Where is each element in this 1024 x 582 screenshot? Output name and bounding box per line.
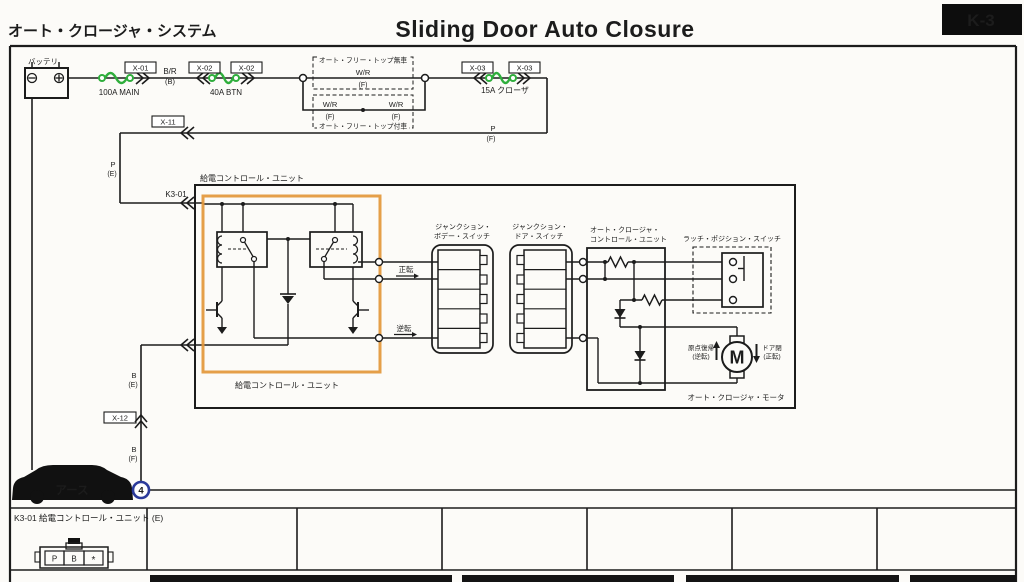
ground-point-number: 4 — [138, 486, 144, 497]
motor-unit-label: オート・クロージャ・モータ — [688, 393, 785, 402]
wire-color-p: P — [110, 160, 115, 169]
wire-loc-b: (B) — [165, 77, 176, 86]
contact-tabs — [517, 256, 524, 343]
footer-connector-cell: K3-01 給電コントロール・ユニット (E) P B * — [14, 513, 163, 568]
page-code-label: K-3 — [967, 11, 994, 30]
battery-plus-terminal-icon — [55, 74, 64, 83]
fuse-100a-main: 100A MAIN X-01 — [99, 62, 156, 97]
diode-icon — [635, 351, 646, 360]
motor-forward-label-1: ドア閉 — [762, 344, 782, 352]
motor-m-label: M — [730, 348, 745, 368]
switch-terminal — [730, 297, 737, 304]
unit-terminal — [376, 259, 383, 266]
resistor-icon — [608, 257, 628, 267]
transistor-2 — [353, 301, 369, 327]
wire-color-b: B — [131, 371, 136, 380]
signal-reverse: 逆転 — [394, 323, 417, 337]
acu-label-2: コントロール・ユニット — [590, 236, 667, 244]
ground-arrow-icon — [217, 327, 227, 334]
fuse-15a-closer: X-03 X-03 15A クローザ — [462, 62, 540, 95]
connector-x03-label: X-03 — [470, 64, 486, 73]
footer-row1-label: K3-01 給電コントロール・ユニット (E) — [14, 513, 163, 523]
wire-loc-e: (E) — [107, 171, 116, 178]
transistor-1 — [206, 301, 222, 327]
battery: バッテリ — [25, 57, 68, 98]
switch-terminal — [730, 259, 737, 266]
wire-color-p: P — [490, 124, 495, 133]
fuse-40a-btn: X-02 X-02 40A BTN — [189, 62, 262, 97]
wire-color-wr: W/R — [356, 68, 371, 77]
auto-closure-control-unit: オート・クロージャ・ コントロール・ユニット — [580, 226, 738, 390]
connector-x03-label: X-03 — [517, 64, 533, 73]
earth-label: アース — [55, 484, 88, 497]
wire-loc-f: (F) — [392, 114, 401, 121]
jb-door-label-2: ドア・スイッチ — [515, 233, 564, 241]
wire-color-wr: W/R — [389, 100, 404, 109]
connector-x02-label: X-02 — [239, 64, 255, 73]
junction-node — [422, 75, 429, 82]
wire-loc-f: (F) — [359, 82, 368, 89]
pin-label-p: P — [52, 555, 57, 564]
option-label: オート・フリー・トップ無車 — [319, 56, 408, 65]
option-label: オート・フリー・トップ付車 — [319, 122, 408, 131]
next-row-header-bars — [150, 575, 1016, 582]
unit-terminal — [376, 276, 383, 283]
acu-wiring — [587, 257, 737, 383]
connector-x11-label: X-11 — [160, 118, 175, 127]
wire-loc-f: (F) — [129, 456, 138, 463]
latch-label: ラッチ・ポジション・スイッチ — [683, 235, 781, 243]
unit-terminal — [580, 276, 587, 283]
power-unit-label-bottom: 給電コントロール・ユニット — [235, 380, 339, 390]
battery-minus-terminal-icon — [28, 74, 37, 83]
arrow-right-icon — [414, 274, 419, 279]
fuse-closer-label: 15A クローザ — [481, 86, 529, 95]
power-unit-label-top: 給電コントロール・ユニット — [200, 173, 304, 183]
switch-terminal — [730, 276, 737, 283]
connector-x12-label: X-12 — [112, 414, 128, 423]
signal-forward-label: 正転 — [399, 265, 414, 274]
option-with-autofreetop: オート・フリー・トップ付車 W/R (F) W/R (F) — [313, 95, 413, 131]
power-control-unit: 給電コントロール・ユニット — [195, 196, 383, 390]
acu-label-1: オート・クロージャ・ — [590, 226, 660, 234]
diagram-canvas: オート・クロージャ・システム Sliding Door Auto Closure… — [0, 0, 1024, 582]
unit-terminal — [580, 335, 587, 342]
wire-loc-f: (F) — [326, 114, 335, 121]
contact-tabs — [480, 256, 487, 343]
junction-door-switch: ジャンクション・ ドア・スイッチ — [510, 223, 572, 353]
fuse-btn-label: 40A BTN — [210, 88, 242, 97]
signal-reverse-label: 逆転 — [397, 323, 412, 333]
wiring-diagram-page: オート・クロージャ・システム Sliding Door Auto Closure… — [0, 0, 1024, 582]
auto-closure-motor: M 原点復帰 (逆転) ドア閉 (正転) オート・クロージャ・モータ — [688, 336, 785, 402]
latch-position-switch: ラッチ・ポジション・スイッチ — [683, 235, 781, 313]
motor-reverse-label-1: 原点復帰 — [688, 343, 715, 352]
page-title: Sliding Door Auto Closure — [395, 16, 694, 42]
motor-forward-label-2: (正転) — [763, 353, 780, 361]
wire-loc-e: (E) — [128, 382, 137, 389]
jb-door-label-1: ジャンクション・ — [512, 223, 568, 231]
connector-x11: X-11 — [152, 116, 194, 139]
wire-color-b: B — [131, 445, 136, 454]
arrow-right-icon — [412, 332, 417, 337]
option-without-autofreetop: オート・フリー・トップ無車 W/R (F) — [313, 55, 413, 89]
ground-point-4: 4 — [133, 482, 149, 498]
unit-terminal — [376, 335, 383, 342]
connector-x01-label: X-01 — [133, 64, 149, 73]
relay-coil-icon — [218, 236, 223, 263]
diode-icon — [615, 309, 626, 318]
relay-1 — [217, 232, 267, 267]
connector-k301-label: K3-01 — [165, 190, 187, 199]
connector-x02-label: X-02 — [197, 64, 213, 73]
junction-node — [300, 75, 307, 82]
arrow-down-icon — [753, 344, 760, 363]
signal-forward: 正転 — [396, 265, 419, 279]
wire-color-wr: W/R — [323, 100, 338, 109]
system-title: オート・クロージャ・システム — [8, 23, 217, 40]
ground-arrow-icon — [348, 327, 358, 334]
unit-terminal — [580, 259, 587, 266]
page-code-badge: K-3 — [942, 4, 1022, 35]
relay-coil-icon — [353, 236, 358, 263]
connector-k301: K3-01 — [165, 190, 194, 209]
fuse-main-label: 100A MAIN — [99, 88, 140, 97]
jb-body-label-2: ボデー・スイッチ — [434, 232, 490, 241]
relay-2 — [310, 232, 362, 267]
earth-car: アース — [12, 465, 133, 504]
junction-body-switch: ジャンクション・ ボデー・スイッチ — [432, 223, 493, 353]
pin-label-b: B — [71, 555, 76, 564]
arrow-up-icon — [713, 341, 720, 360]
jb-body-label-1: ジャンクション・ — [435, 223, 491, 231]
motor-reverse-label-2: (逆転) — [692, 352, 709, 361]
wire-color-br: B/R — [163, 67, 177, 76]
chassis-ground-icon — [280, 294, 296, 304]
wire-loc-f: (F) — [487, 136, 496, 143]
pin-label-star: * — [92, 555, 96, 566]
resistor-icon — [642, 295, 662, 305]
